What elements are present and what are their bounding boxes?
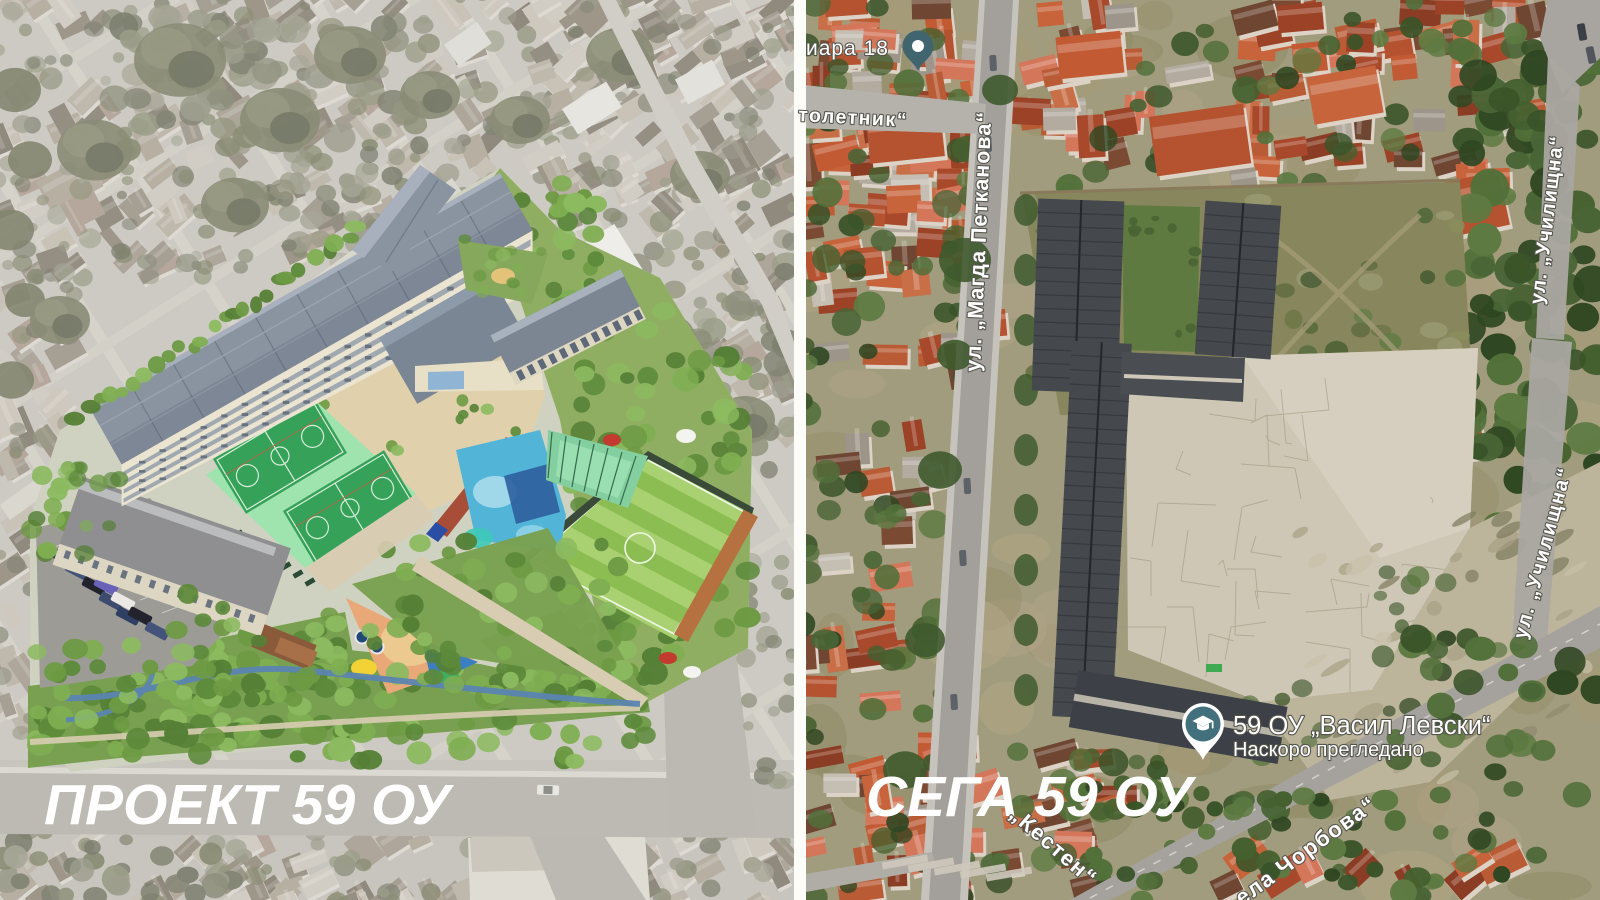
svg-text:ПРОЕКТ 59 ОУ: ПРОЕКТ 59 ОУ (44, 773, 455, 837)
svg-text:иара 18: иара 18 (806, 37, 889, 60)
svg-text:59 ОУ „Васил Левски“: 59 ОУ „Васил Левски“ (1233, 712, 1490, 740)
svg-text:Наскоро прегледано: Наскоро прегледано (1233, 739, 1424, 761)
